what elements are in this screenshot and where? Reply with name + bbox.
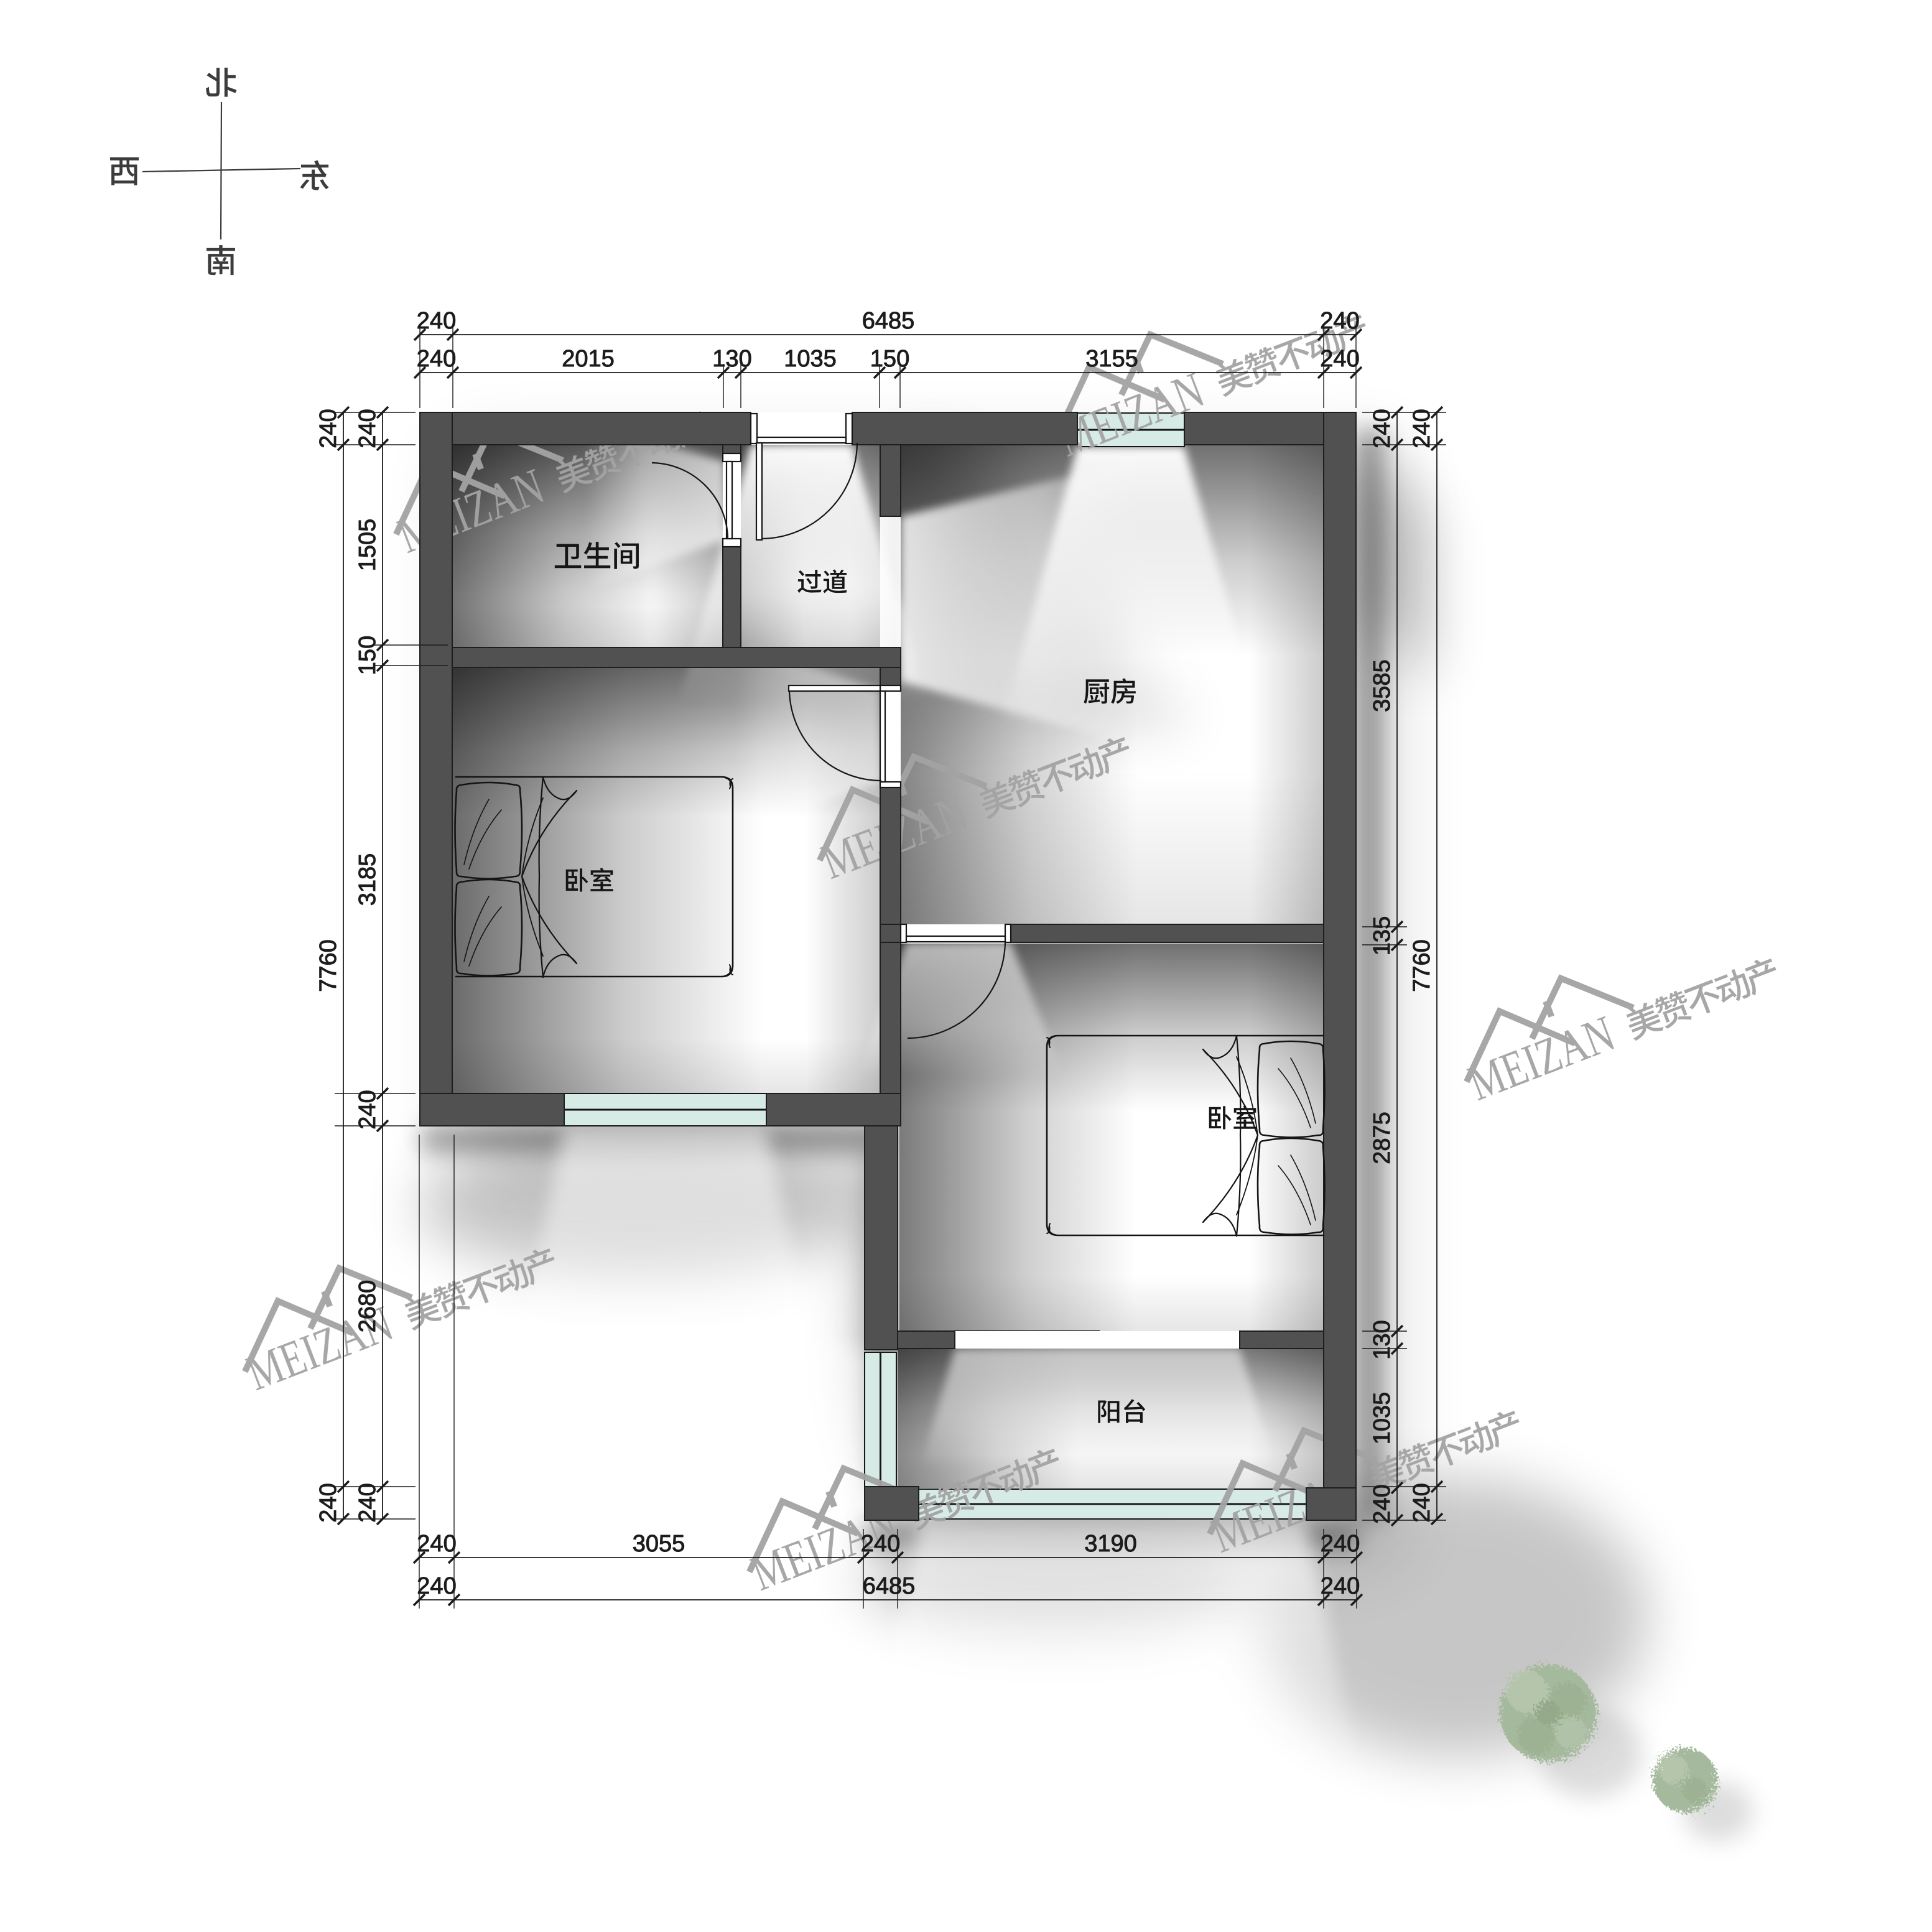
svg-text:3190: 3190 xyxy=(1084,1531,1137,1557)
svg-text:130: 130 xyxy=(1369,1320,1395,1359)
svg-text:240: 240 xyxy=(1409,1483,1435,1522)
svg-text:3185: 3185 xyxy=(355,853,381,906)
svg-text:240: 240 xyxy=(1369,1484,1395,1523)
svg-text:3055: 3055 xyxy=(633,1531,685,1557)
svg-text:240: 240 xyxy=(1369,409,1395,448)
svg-text:150: 150 xyxy=(870,346,909,372)
svg-text:240: 240 xyxy=(355,409,381,448)
svg-text:240: 240 xyxy=(417,1573,456,1599)
svg-text:1035: 1035 xyxy=(784,346,837,372)
svg-text:7760: 7760 xyxy=(1409,939,1435,992)
svg-text:240: 240 xyxy=(1321,1531,1360,1557)
svg-text:1035: 1035 xyxy=(1369,1392,1395,1445)
svg-text:240: 240 xyxy=(355,1483,381,1522)
svg-text:150: 150 xyxy=(355,636,381,675)
svg-text:3155: 3155 xyxy=(1085,346,1138,372)
svg-text:6485: 6485 xyxy=(862,308,915,334)
svg-text:240: 240 xyxy=(1321,1573,1360,1599)
svg-text:240: 240 xyxy=(355,1090,381,1129)
svg-text:240: 240 xyxy=(1409,409,1435,448)
svg-text:2015: 2015 xyxy=(562,346,615,372)
svg-text:1505: 1505 xyxy=(355,519,381,572)
svg-text:240: 240 xyxy=(861,1531,900,1557)
svg-text:240: 240 xyxy=(417,1531,456,1557)
svg-text:3585: 3585 xyxy=(1369,659,1395,712)
svg-text:7760: 7760 xyxy=(315,939,341,992)
svg-text:240: 240 xyxy=(417,346,456,372)
svg-text:240: 240 xyxy=(417,308,456,334)
svg-text:6485: 6485 xyxy=(863,1573,916,1599)
svg-text:240: 240 xyxy=(315,1483,341,1522)
svg-text:2680: 2680 xyxy=(355,1280,381,1333)
svg-text:240: 240 xyxy=(1320,308,1359,334)
svg-text:240: 240 xyxy=(1320,346,1359,372)
svg-text:240: 240 xyxy=(315,409,341,448)
svg-text:130: 130 xyxy=(712,346,751,372)
svg-text:135: 135 xyxy=(1369,916,1395,955)
svg-text:2875: 2875 xyxy=(1369,1112,1395,1164)
